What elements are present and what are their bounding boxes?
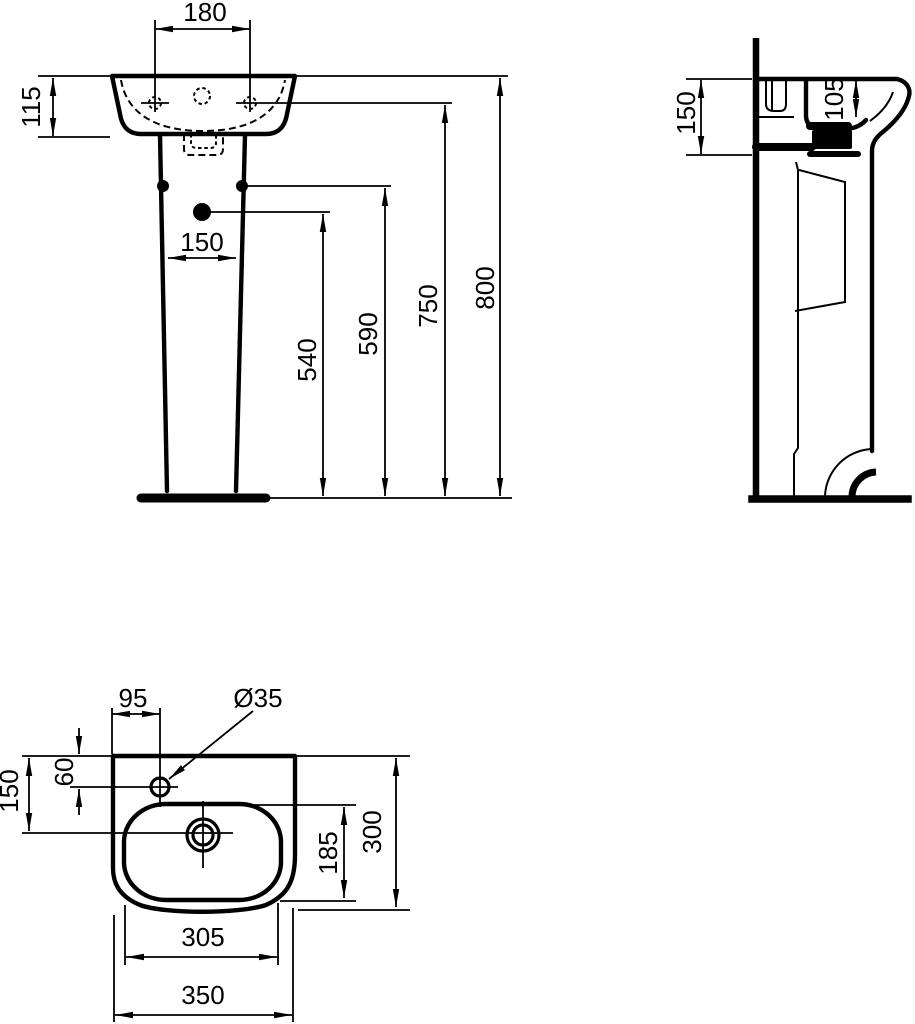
dim-350-label: 350 (181, 980, 224, 1010)
dim-540-label: 540 (292, 338, 322, 381)
dim-105-label: 105 (819, 77, 849, 120)
pedestal-side-panel-line (795, 170, 845, 311)
pedestal-front-outline (160, 135, 245, 491)
drawing-svg: 180 115 150 540 590 750 800 (0, 0, 915, 1024)
dim-300-label: 300 (357, 810, 387, 853)
pedestal-fixing-point-right (236, 180, 248, 192)
dim-185-label: 185 (313, 831, 343, 874)
pedestal-back-cutout-arc-thick (852, 472, 876, 496)
trap-hidden-outline (184, 134, 223, 155)
dim-150-pedestal-label: 150 (180, 227, 223, 257)
tap-hole-leader-line (169, 711, 253, 779)
drain-boss-section (812, 130, 852, 149)
technical-drawing: 180 115 150 540 590 750 800 (0, 0, 915, 1024)
dim-95-label: 95 (119, 683, 148, 713)
basin-outer-profile (872, 79, 909, 451)
dim-590-label: 590 (353, 312, 383, 355)
dim-150-side-label: 150 (671, 91, 701, 134)
dim-150-plan-label: 150 (0, 769, 24, 812)
dim-180-label: 180 (183, 0, 226, 27)
dim-115-label: 115 (16, 86, 46, 127)
pedestal-fixing-point-left (157, 180, 169, 192)
tap-hole-diameter-label: Ø35 (233, 683, 282, 713)
dim-750-label: 750 (413, 284, 443, 327)
dim-800-label: 800 (470, 266, 500, 309)
drain-point (193, 203, 211, 221)
pedestal-side-front-edge (794, 162, 798, 496)
dim-60-label: 60 (49, 758, 79, 787)
plan-view: 95 Ø35 60 150 185 300 305 350 (0, 683, 410, 1022)
basin-front-outline (112, 76, 295, 134)
front-view: 180 115 150 540 590 750 800 (16, 0, 512, 498)
overflow-hole-hidden (194, 88, 210, 104)
basin-front-wall-inner-line (870, 92, 893, 121)
wall-bracket-detail (766, 81, 786, 111)
side-view: 150 105 (671, 38, 909, 499)
dim-305-label: 305 (181, 922, 224, 952)
